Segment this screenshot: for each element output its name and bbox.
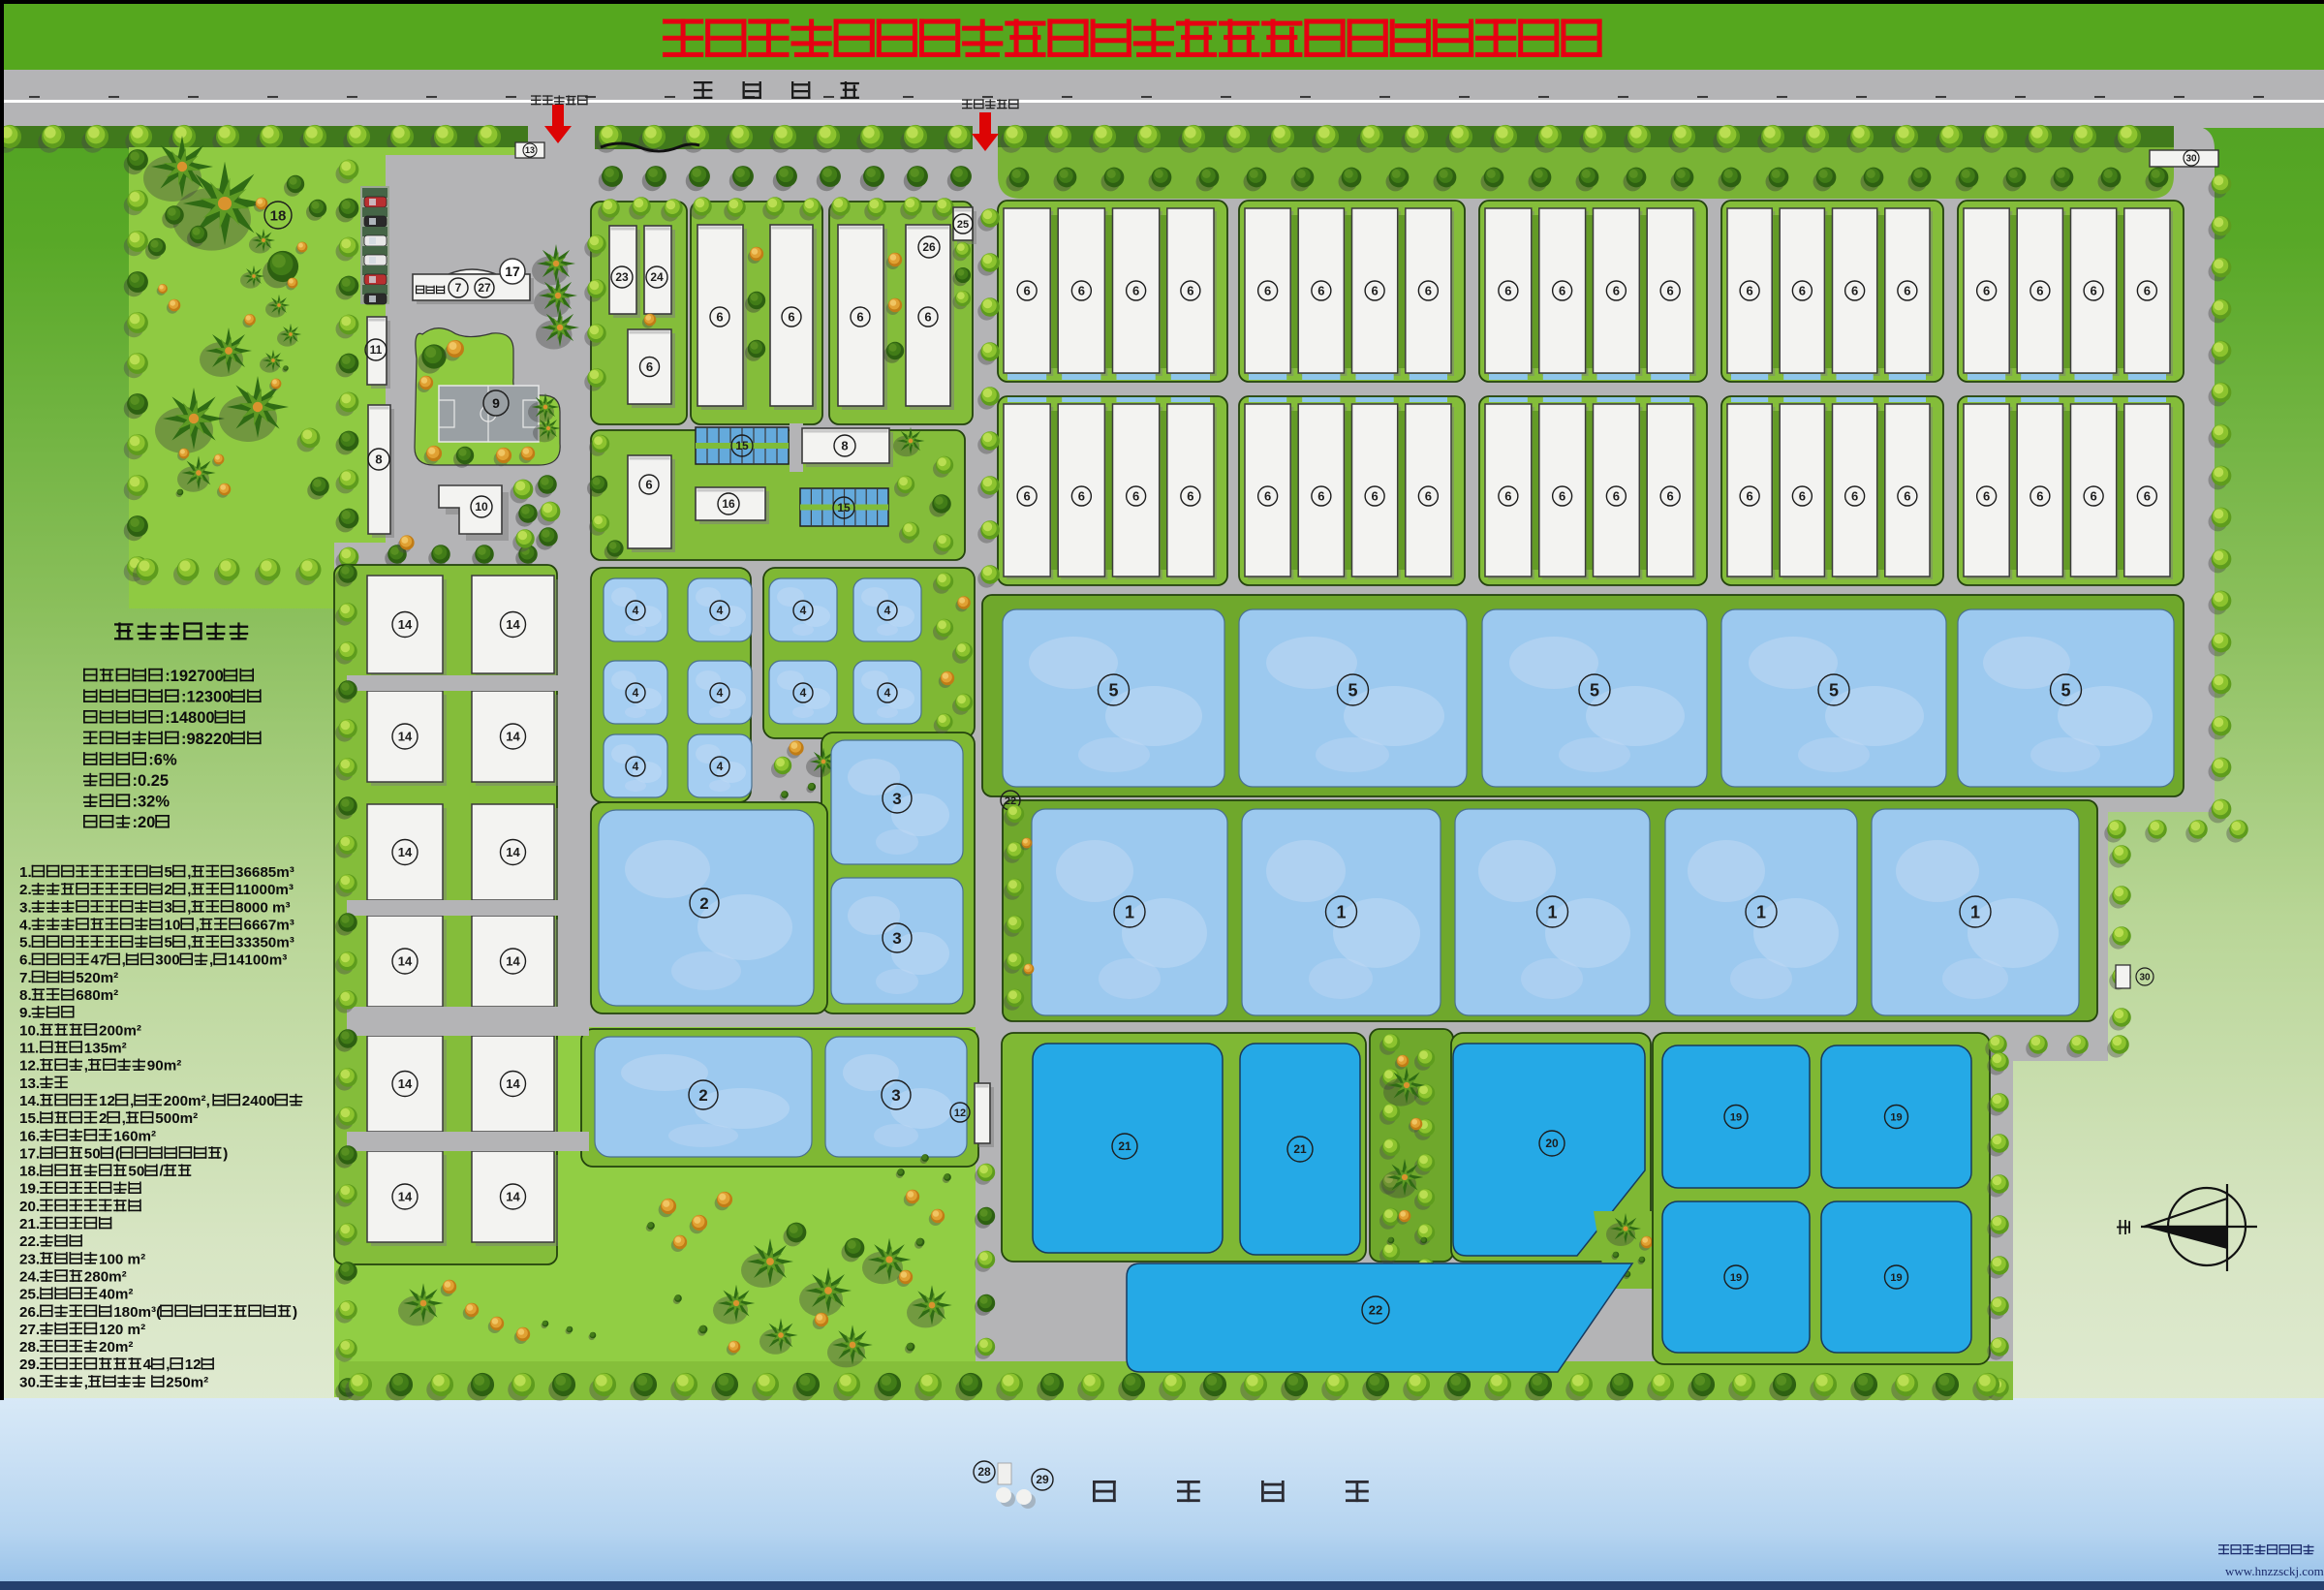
- svg-text:200m²,: 200m²,: [164, 1093, 210, 1109]
- svg-text:6: 6: [1187, 284, 1193, 298]
- svg-text:6.: 6.: [19, 952, 32, 969]
- svg-text:6: 6: [716, 310, 723, 325]
- svg-text:4.: 4.: [19, 917, 32, 933]
- svg-text:6: 6: [1425, 489, 1432, 504]
- svg-text:6: 6: [1613, 284, 1620, 298]
- svg-text:,: ,: [166, 1356, 170, 1373]
- svg-text::20: :20: [133, 814, 156, 831]
- svg-text:15.: 15.: [19, 1110, 40, 1127]
- svg-text:27.: 27.: [19, 1322, 40, 1338]
- svg-text:2: 2: [699, 894, 708, 913]
- svg-text:28: 28: [977, 1465, 991, 1479]
- svg-text:23: 23: [615, 270, 629, 284]
- svg-text:2: 2: [165, 882, 172, 898]
- svg-text:26: 26: [922, 240, 936, 254]
- svg-text:6: 6: [1425, 284, 1432, 298]
- svg-text:180m³(: 180m³(: [113, 1304, 162, 1321]
- svg-text:6: 6: [1078, 489, 1085, 504]
- svg-text:,: ,: [130, 1093, 134, 1109]
- svg-text:6: 6: [924, 310, 931, 325]
- svg-text:,: ,: [196, 917, 200, 933]
- svg-text:4: 4: [143, 1356, 152, 1373]
- svg-text:680m²: 680m²: [76, 987, 118, 1004]
- svg-text:3.: 3.: [19, 899, 32, 916]
- svg-text:19.: 19.: [19, 1181, 40, 1198]
- svg-text:10: 10: [475, 500, 488, 514]
- svg-text:6: 6: [1372, 284, 1379, 298]
- svg-text:6: 6: [1187, 489, 1193, 504]
- svg-text:22.: 22.: [19, 1233, 40, 1250]
- svg-text:13: 13: [525, 145, 535, 155]
- svg-text:23.: 23.: [19, 1251, 40, 1267]
- svg-text:14: 14: [506, 845, 520, 859]
- svg-text:14: 14: [398, 845, 413, 859]
- svg-text:14: 14: [506, 1076, 520, 1091]
- svg-text:29.: 29.: [19, 1356, 40, 1373]
- svg-text:25.: 25.: [19, 1287, 40, 1303]
- svg-text:6: 6: [1851, 284, 1858, 298]
- svg-text:6: 6: [1264, 284, 1271, 298]
- svg-text:90m²: 90m²: [147, 1058, 181, 1075]
- svg-text:4: 4: [633, 686, 639, 700]
- svg-text:5: 5: [165, 935, 173, 951]
- svg-text:,: ,: [187, 899, 191, 916]
- svg-text:13.: 13.: [19, 1076, 40, 1092]
- svg-text:40m²: 40m²: [99, 1287, 133, 1303]
- svg-text:135m²: 135m²: [84, 1041, 127, 1057]
- svg-text:50: 50: [84, 1145, 101, 1162]
- svg-text:6: 6: [2091, 489, 2097, 504]
- svg-text:22: 22: [1369, 1303, 1382, 1318]
- svg-text:6: 6: [1024, 489, 1031, 504]
- svg-text:18.: 18.: [19, 1164, 40, 1180]
- svg-text:17: 17: [505, 264, 520, 279]
- svg-text:21: 21: [1118, 1139, 1131, 1153]
- svg-text:7: 7: [455, 281, 462, 295]
- svg-text:17.: 17.: [19, 1145, 40, 1162]
- svg-text:6: 6: [1264, 489, 1271, 504]
- svg-text:1: 1: [1547, 902, 1557, 921]
- svg-text:8.: 8.: [19, 987, 32, 1004]
- svg-text:4: 4: [800, 604, 807, 617]
- svg-text:8: 8: [375, 452, 382, 467]
- svg-text:6: 6: [1983, 284, 1990, 298]
- svg-text:50: 50: [128, 1164, 144, 1180]
- svg-text:21.: 21.: [19, 1216, 40, 1232]
- svg-text:,: ,: [122, 952, 126, 969]
- svg-text:5: 5: [1829, 680, 1839, 700]
- svg-text:6: 6: [2036, 489, 2043, 504]
- svg-text:,: ,: [84, 1374, 88, 1390]
- svg-text:5: 5: [165, 864, 173, 881]
- svg-text:6: 6: [1613, 489, 1620, 504]
- svg-text:24.: 24.: [19, 1269, 40, 1286]
- svg-text:,: ,: [187, 935, 191, 951]
- svg-text:36685m³: 36685m³: [235, 864, 294, 881]
- svg-text:10.: 10.: [19, 1022, 40, 1039]
- svg-text::32%: :32%: [133, 794, 170, 811]
- svg-text:30: 30: [2185, 154, 2197, 165]
- svg-text:300: 300: [155, 952, 179, 969]
- svg-text:14: 14: [506, 954, 520, 969]
- svg-text:6: 6: [1559, 284, 1565, 298]
- svg-text:8000 m³: 8000 m³: [235, 899, 291, 916]
- svg-text:14: 14: [398, 617, 413, 632]
- svg-text:33350m³: 33350m³: [235, 935, 294, 951]
- svg-text:14100m³: 14100m³: [229, 952, 288, 969]
- svg-text:4: 4: [717, 760, 724, 773]
- svg-text:14.: 14.: [19, 1093, 40, 1109]
- svg-text:6: 6: [1504, 489, 1511, 504]
- svg-text:12: 12: [954, 1107, 966, 1119]
- svg-text:27: 27: [478, 281, 491, 295]
- svg-text:15: 15: [735, 439, 749, 452]
- svg-text:12.: 12.: [19, 1058, 40, 1075]
- svg-text:4: 4: [884, 686, 891, 700]
- svg-text:1: 1: [1970, 902, 1980, 921]
- svg-text:6: 6: [2091, 284, 2097, 298]
- svg-text:7.: 7.: [19, 970, 32, 986]
- svg-text:6: 6: [1747, 489, 1753, 504]
- svg-text:,: ,: [84, 1058, 88, 1075]
- svg-text:14: 14: [398, 954, 413, 969]
- svg-text:6: 6: [1132, 489, 1139, 504]
- svg-text:5: 5: [2061, 680, 2070, 700]
- svg-text:200m²: 200m²: [99, 1022, 141, 1039]
- svg-text:16.: 16.: [19, 1128, 40, 1144]
- svg-text:280m²: 280m²: [84, 1269, 127, 1286]
- svg-text:14: 14: [506, 1190, 520, 1204]
- svg-text:6: 6: [645, 478, 652, 492]
- svg-text:5: 5: [1348, 680, 1357, 700]
- svg-text:6: 6: [1317, 489, 1324, 504]
- svg-text:19: 19: [1730, 1272, 1742, 1284]
- svg-text:6: 6: [646, 359, 653, 374]
- svg-text::192700: :192700: [165, 668, 224, 685]
- svg-text:9: 9: [492, 395, 500, 411]
- svg-text:6: 6: [1983, 489, 1990, 504]
- svg-text:6: 6: [1078, 284, 1085, 298]
- svg-text:12: 12: [99, 1093, 115, 1109]
- svg-text:26.: 26.: [19, 1304, 40, 1321]
- svg-text:11000m³: 11000m³: [235, 882, 294, 898]
- svg-text:250m²: 250m²: [166, 1374, 208, 1390]
- svg-text:19: 19: [1730, 1111, 1742, 1123]
- svg-text:20.: 20.: [19, 1199, 40, 1215]
- svg-text:6: 6: [1372, 489, 1379, 504]
- svg-text::6%: :6%: [148, 751, 177, 768]
- svg-text:6: 6: [2036, 284, 2043, 298]
- svg-text:160m²: 160m²: [113, 1128, 156, 1144]
- svg-text:5: 5: [1590, 680, 1599, 700]
- svg-text:20m²: 20m²: [99, 1339, 133, 1356]
- svg-text:6: 6: [1851, 489, 1858, 504]
- svg-text:4: 4: [884, 604, 891, 617]
- svg-text:30.: 30.: [19, 1374, 40, 1390]
- svg-text:1.: 1.: [19, 864, 32, 881]
- svg-text:4: 4: [633, 604, 639, 617]
- svg-text:18: 18: [270, 207, 287, 224]
- svg-text:,: ,: [209, 952, 213, 969]
- svg-text:2.: 2.: [19, 882, 32, 898]
- svg-text:8: 8: [841, 439, 848, 453]
- svg-text:): ): [223, 1145, 228, 1162]
- svg-text:100 m²: 100 m²: [99, 1251, 145, 1267]
- svg-text:10: 10: [165, 917, 181, 933]
- svg-text:5.: 5.: [19, 935, 32, 951]
- svg-text:6: 6: [1559, 489, 1565, 504]
- svg-text:3: 3: [892, 790, 901, 808]
- svg-text:24: 24: [650, 270, 664, 284]
- svg-text:2400: 2400: [242, 1093, 275, 1109]
- svg-text:6: 6: [1024, 284, 1031, 298]
- svg-text:6: 6: [1667, 489, 1674, 504]
- svg-text:4: 4: [633, 760, 639, 773]
- svg-text:25: 25: [957, 219, 969, 231]
- svg-text:14: 14: [506, 617, 520, 632]
- svg-text:12: 12: [185, 1356, 201, 1373]
- svg-text:6667m³: 6667m³: [244, 917, 294, 933]
- svg-text:1: 1: [1336, 902, 1346, 921]
- svg-text:500m²: 500m²: [155, 1110, 198, 1127]
- svg-text:14: 14: [398, 1076, 413, 1091]
- svg-text::12300: :12300: [181, 689, 231, 706]
- svg-text::0.25: :0.25: [133, 772, 170, 790]
- svg-text:6: 6: [1904, 489, 1910, 504]
- svg-text:28.: 28.: [19, 1339, 40, 1356]
- svg-text:6: 6: [856, 310, 863, 325]
- svg-text:,: ,: [122, 1110, 126, 1127]
- svg-text:4: 4: [717, 604, 724, 617]
- svg-text:www.hnzzsckj.com: www.hnzzsckj.com: [2225, 1564, 2324, 1578]
- svg-text::14800: :14800: [165, 709, 214, 727]
- svg-text:6: 6: [1317, 284, 1324, 298]
- svg-text:30: 30: [2139, 973, 2151, 983]
- svg-text:19: 19: [1890, 1111, 1902, 1123]
- svg-text:6: 6: [1904, 284, 1910, 298]
- svg-text:4: 4: [800, 686, 807, 700]
- svg-text:15: 15: [837, 501, 851, 514]
- svg-text:6: 6: [2144, 489, 2151, 504]
- svg-text:,: ,: [187, 864, 191, 881]
- svg-text:6: 6: [2144, 284, 2151, 298]
- svg-text:,: ,: [187, 882, 191, 898]
- svg-text:3: 3: [165, 899, 172, 916]
- svg-text:21: 21: [1293, 1142, 1307, 1156]
- svg-text:6: 6: [1747, 284, 1753, 298]
- svg-text:47: 47: [91, 952, 108, 969]
- svg-text:): ): [293, 1304, 297, 1321]
- svg-text:6: 6: [1799, 284, 1806, 298]
- svg-text:19: 19: [1890, 1272, 1902, 1284]
- svg-text:6: 6: [1799, 489, 1806, 504]
- svg-text:2: 2: [99, 1110, 107, 1127]
- svg-text:1: 1: [1125, 902, 1134, 921]
- svg-text:6: 6: [788, 310, 794, 325]
- svg-text:14: 14: [398, 1190, 413, 1204]
- svg-text:1: 1: [1756, 902, 1766, 921]
- svg-text:9.: 9.: [19, 1005, 32, 1021]
- svg-text:120 m²: 120 m²: [99, 1322, 145, 1338]
- svg-text:3: 3: [892, 929, 901, 948]
- svg-text:16: 16: [722, 497, 735, 511]
- svg-text:11.: 11.: [19, 1041, 39, 1057]
- svg-text:520m²: 520m²: [76, 970, 118, 986]
- svg-text:29: 29: [1036, 1473, 1049, 1486]
- svg-text:4: 4: [717, 686, 724, 700]
- svg-text:6: 6: [1667, 284, 1674, 298]
- svg-text:11: 11: [370, 343, 383, 357]
- svg-text::98220: :98220: [181, 731, 231, 748]
- svg-text:14: 14: [506, 730, 520, 744]
- svg-text:14: 14: [398, 730, 413, 744]
- svg-text:3: 3: [891, 1086, 900, 1105]
- svg-text:2: 2: [698, 1086, 707, 1105]
- svg-text:6: 6: [1504, 284, 1511, 298]
- svg-text:6: 6: [1132, 284, 1139, 298]
- svg-text:5: 5: [1108, 680, 1118, 700]
- svg-text:20: 20: [1545, 1137, 1559, 1150]
